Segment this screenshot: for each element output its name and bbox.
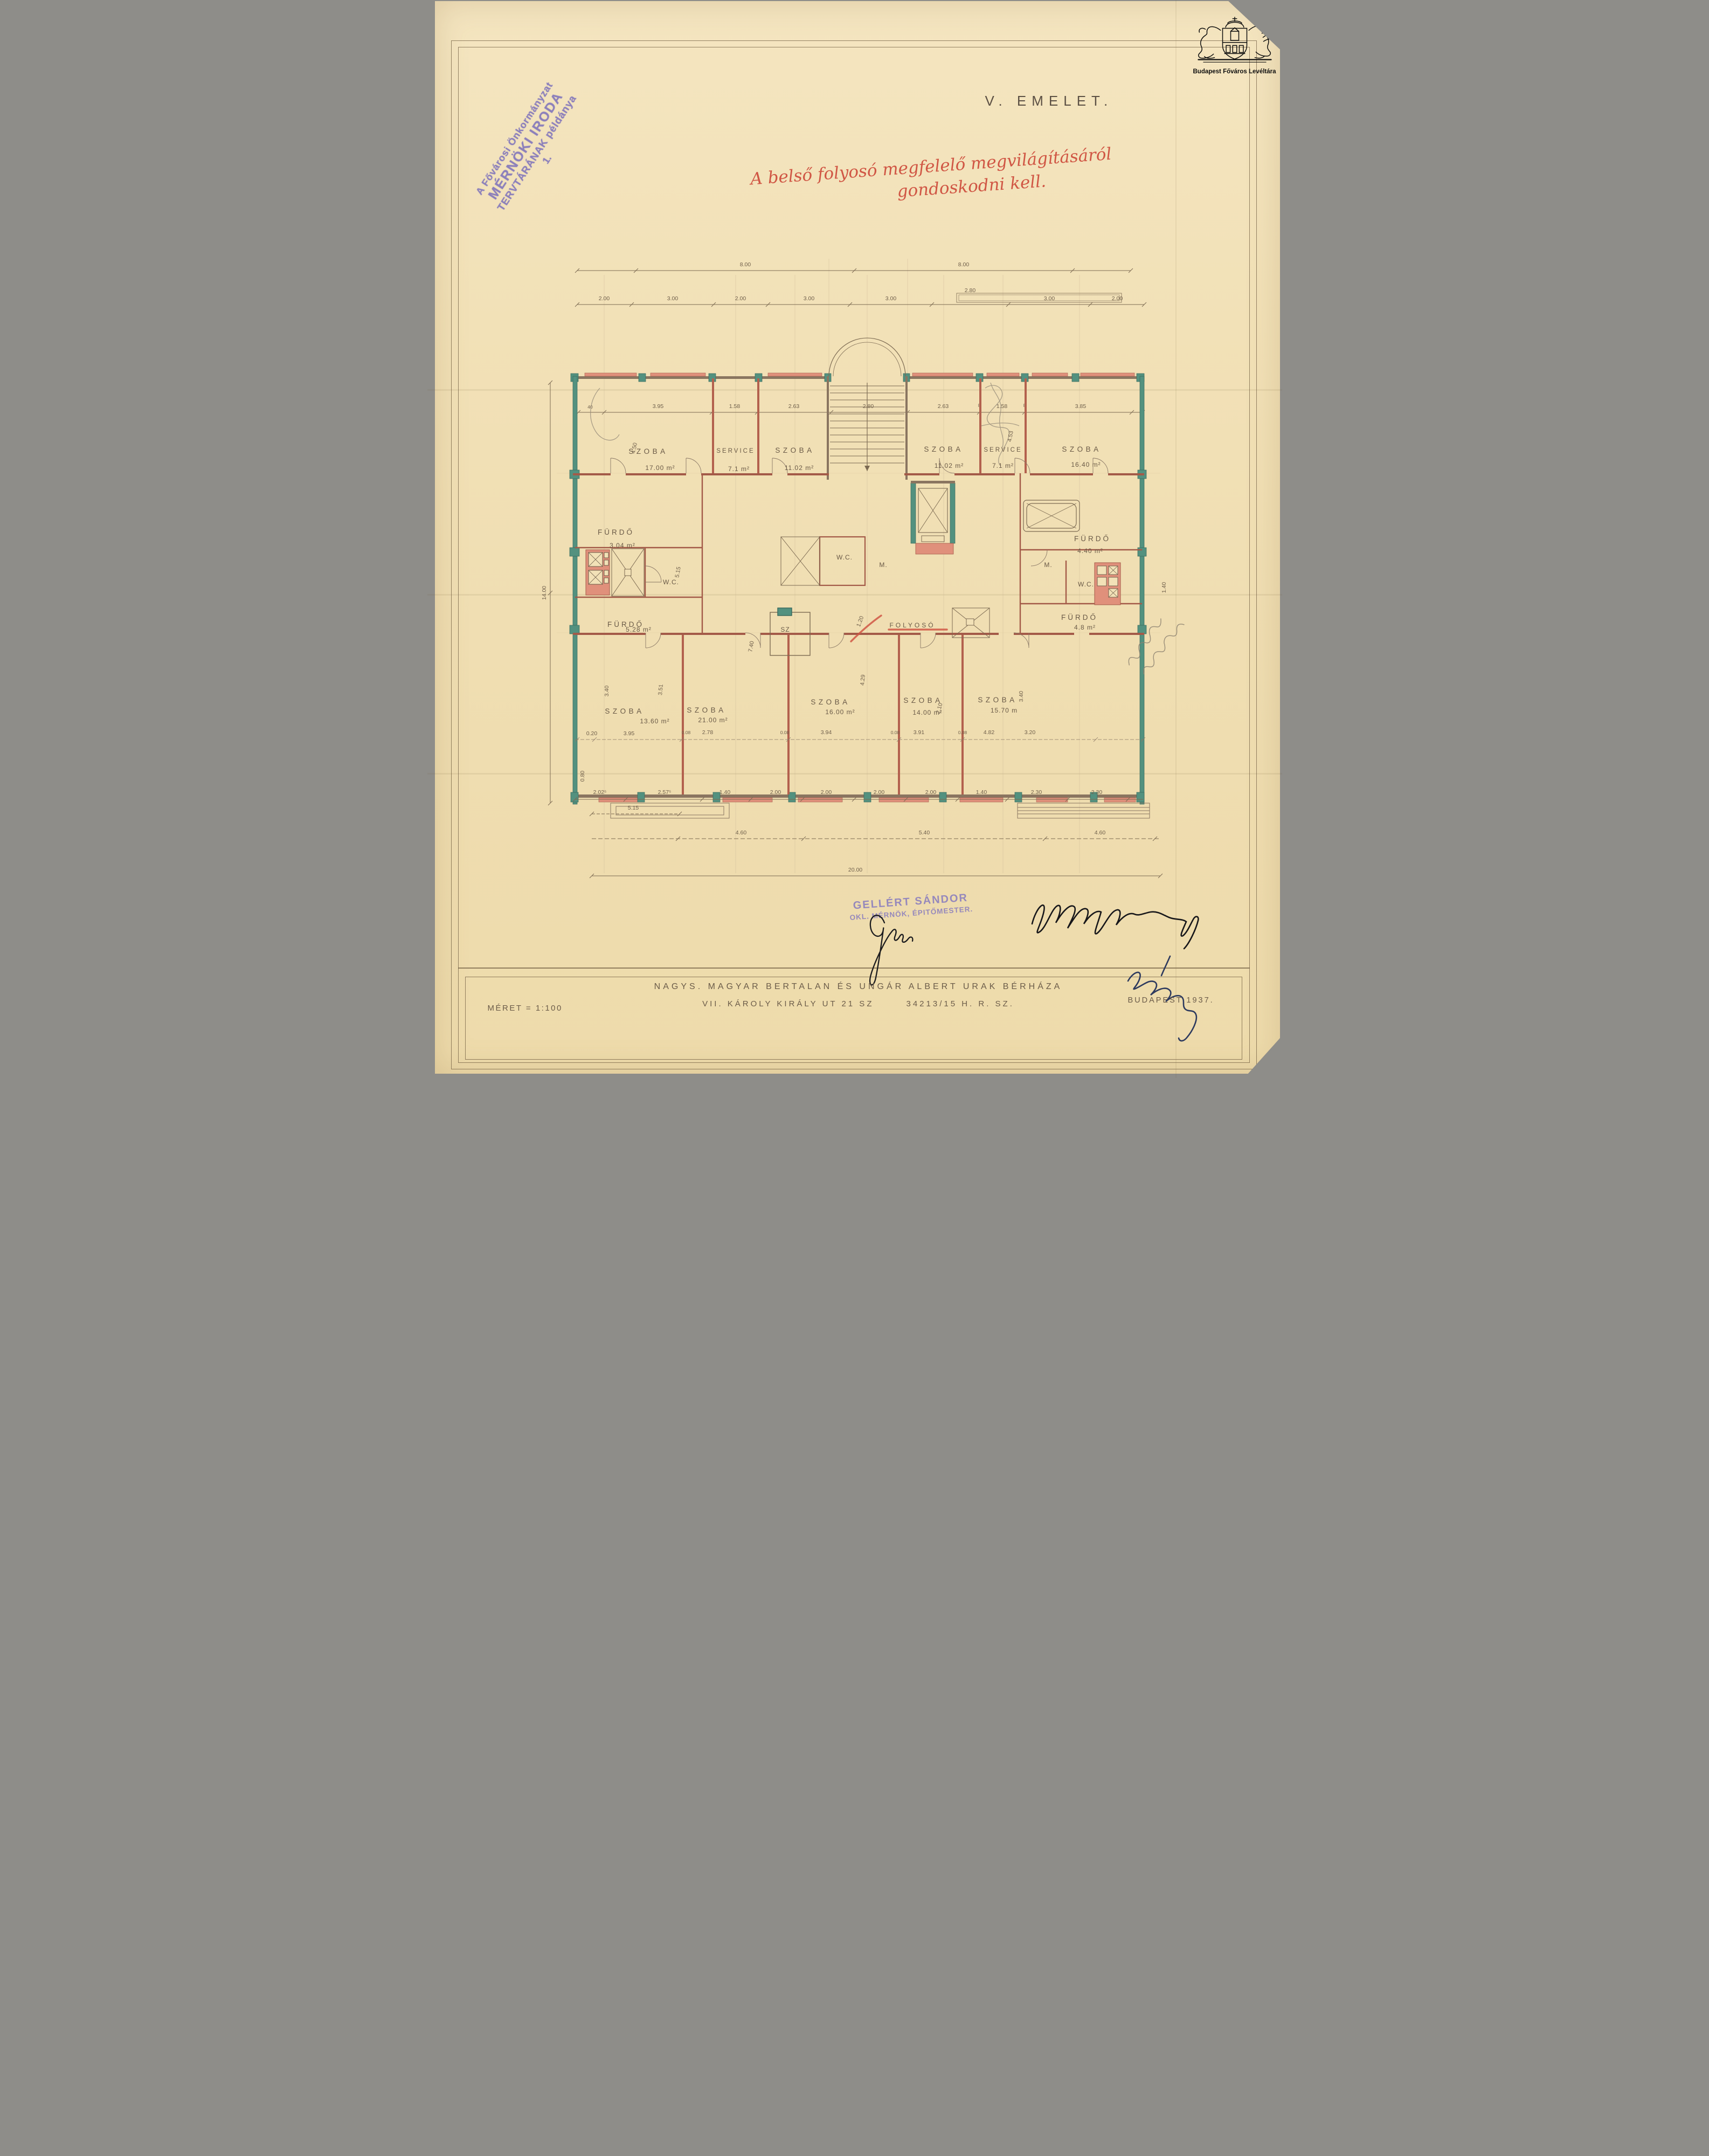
closet-sz xyxy=(770,608,810,655)
architect-signature xyxy=(863,907,922,993)
owner-signature xyxy=(1025,885,1213,950)
dimension-label: 7.40 xyxy=(747,640,755,652)
dimension-label: 5.40 xyxy=(918,830,930,836)
project-title: NAGYS. MAGYAR BERTALAN ÉS UNGÁR ALBERT U… xyxy=(589,982,1128,992)
dimension-label: 2.63 xyxy=(788,403,799,410)
room-area: 21.00 m² xyxy=(698,716,728,724)
dimension-label: 2.30 xyxy=(1030,789,1042,796)
room-area: 17.00 m² xyxy=(645,464,675,472)
vertical-dimensions: 4.50 4.53 5.15 7.40 4.29 1.20 14.00 1.40… xyxy=(541,381,1167,805)
room-area: 11.02 m² xyxy=(934,462,963,469)
scanned-drawing-page: A Fővárosi Önkormányzat MÉRNÖKI IRODA TE… xyxy=(427,0,1282,1078)
dimension-chain-bottom-rooms: 0.20 3.95 0.08 2.78 0.08 3.94 0.08 3.91 … xyxy=(575,729,1145,742)
dimension-label: 2.00 xyxy=(1111,295,1123,302)
dimension-label: 4.60 xyxy=(735,830,746,836)
dimension-label: 8.00 xyxy=(739,261,751,268)
room-label: SZOBA xyxy=(687,706,726,714)
dimension-label: 2.00 xyxy=(598,295,610,302)
dimension-label: 14.00 xyxy=(541,586,548,600)
room-area: 4.8 m² xyxy=(1074,624,1095,631)
lift-lobby-center xyxy=(781,537,820,585)
dimension-label: 2.80 xyxy=(862,403,874,410)
dimension-label: 2.00 xyxy=(873,789,884,796)
room-area: 5.28 m² xyxy=(626,626,652,633)
dimension-label: 3.00 xyxy=(885,295,896,302)
room-label: M. xyxy=(879,561,887,569)
room-area: 4.40 m² xyxy=(1077,547,1103,555)
dimension-label: 0.08 xyxy=(890,730,900,735)
dimension-label: 0.08 xyxy=(681,730,690,735)
dimension-label: 0.08 xyxy=(958,730,967,735)
project-address: VII. KÁROLY KIRÁLY UT 21 SZ xyxy=(702,999,874,1008)
dimension-label: 4.60 xyxy=(1094,830,1105,836)
dimension-label: 3.94 xyxy=(820,729,832,736)
room-label: SZOBA xyxy=(811,698,850,706)
dimension-label: 5.15 xyxy=(674,566,682,578)
room-label: FÜRDŐ xyxy=(1061,613,1098,621)
dimension-label: 0.80 xyxy=(579,771,586,782)
elevator-left xyxy=(586,550,610,595)
room-area: 13.60 m² xyxy=(640,717,669,725)
pencil-note-scribble xyxy=(1112,582,1220,701)
dimension-label: 2.57⁵ xyxy=(658,789,671,796)
dimension-label: 3.20 xyxy=(1024,729,1035,736)
room-label: SZOBA xyxy=(978,696,1017,704)
dimension-label: 40 xyxy=(587,404,593,410)
dimension-label: 1.58 xyxy=(729,403,740,410)
room-label: SZOBA xyxy=(775,446,814,454)
dimension-label: 2.00 xyxy=(820,789,832,796)
dimension-label: 4.29 xyxy=(859,674,867,686)
dimension-label: 2.63 xyxy=(937,403,949,410)
dimension-label: 3.00 xyxy=(803,295,814,302)
dimension-chain-top-outer: 8.00 8.00 xyxy=(575,261,1133,273)
dimension-label: 20.00 xyxy=(848,867,862,873)
dimension-label: 8.00 xyxy=(958,261,969,268)
room-label: FOLYOSÓ xyxy=(889,621,935,629)
lift-lobby-left xyxy=(612,549,644,596)
city-year: BUDAPEST 1937. xyxy=(1128,996,1214,1005)
dimension-label: 2.00 xyxy=(735,295,746,302)
room-label: M. xyxy=(1044,561,1052,569)
dimension-chain-bottom-outer: 5.15 4.60 5.40 4.60 20.00 xyxy=(590,805,1163,878)
room-area: 16.00 m² xyxy=(825,708,855,716)
floor-title: V. EMELET. xyxy=(985,93,1113,109)
titleblock-text: NAGYS. MAGYAR BERTALAN ÉS UNGÁR ALBERT U… xyxy=(589,982,1128,1008)
dimension-label: 1.40 xyxy=(719,789,730,796)
exterior-walls xyxy=(570,373,1150,818)
room-label: FÜRDŐ xyxy=(1074,535,1111,543)
parcel-number: 34213/15 H. R. SZ. xyxy=(906,999,1014,1008)
room-label: SZ xyxy=(780,626,790,633)
dimension-label: 3.00 xyxy=(667,295,678,302)
dimension-label: 3.95 xyxy=(652,403,663,410)
room-area: 15.70 m xyxy=(990,707,1017,714)
room-area: 11.02 m² xyxy=(784,464,813,472)
floor-plan: 8.00 8.00 2.00 3.00 2.00 3.00 3.00 2.80 … xyxy=(535,248,1171,879)
room-area: 7.1 m² xyxy=(728,465,749,473)
dimension-label: 3.00 xyxy=(1043,295,1055,302)
room-label: SZOBA xyxy=(924,445,963,453)
dimension-label: 2.78 xyxy=(702,729,713,736)
room-label: W.C. xyxy=(836,554,853,561)
room-label: SERVICE xyxy=(984,447,1022,453)
scale-label: MÉRET = 1:100 xyxy=(488,1004,563,1013)
bathtub xyxy=(1023,500,1080,531)
dimension-label: 3.85 xyxy=(1075,403,1086,410)
dimension-label: 1.20 xyxy=(855,615,865,627)
room-label: W.C. xyxy=(663,578,679,586)
archives-logo-text: Budapest Főváros Levéltára xyxy=(1188,68,1281,75)
dimension-label: 3.40 xyxy=(604,686,610,697)
room-label: FÜRDŐ xyxy=(598,528,634,536)
dimension-chain-top-axes: 2.00 3.00 2.00 3.00 3.00 2.80 3.00 2.00 xyxy=(575,287,1146,307)
dimension-label: 3.40 xyxy=(1018,691,1025,702)
room-area: 7.1 m² xyxy=(992,462,1013,469)
dimension-label: 2.00 xyxy=(770,789,781,796)
room-label: W.C. xyxy=(1078,581,1094,588)
dimension-label: 3.51 xyxy=(657,684,665,696)
room-label: SZOBA xyxy=(1062,445,1101,453)
dimension-label: 0.20 xyxy=(586,730,597,737)
room-area: 3.04 m² xyxy=(610,542,635,549)
dimension-label: 4.53 xyxy=(1006,430,1014,442)
dimension-label: 4.82 xyxy=(983,729,994,736)
dimension-label: 3.91 xyxy=(913,729,924,736)
dimension-label: 2.30 xyxy=(1091,789,1102,796)
dimension-chain-room-top: 40 3.95 8 1.58 8 2.63 2.80 2.63 8 1.58 8… xyxy=(576,403,1145,414)
project-address-line: VII. KÁROLY KIRÁLY UT 21 SZ34213/15 H. R… xyxy=(589,999,1128,1008)
dimension-label: 3.95 xyxy=(623,730,634,737)
dimension-label: 0.08 xyxy=(780,730,789,735)
elevator-center xyxy=(911,481,955,554)
dimension-label: 1.40 xyxy=(975,789,987,796)
interior-walls xyxy=(573,378,1144,794)
room-area: 16.40 m² xyxy=(1071,461,1101,468)
room-label: SERVICE xyxy=(716,448,755,454)
dimension-label: 2.02⁵ xyxy=(593,789,606,796)
dimension-label: 5.15 xyxy=(627,805,639,811)
dimension-label: 2.00 xyxy=(925,789,936,796)
room-label: SZOBA xyxy=(605,707,644,715)
dimension-label: 2.80 xyxy=(964,287,975,294)
dimension-label: 1.58 xyxy=(996,403,1007,410)
